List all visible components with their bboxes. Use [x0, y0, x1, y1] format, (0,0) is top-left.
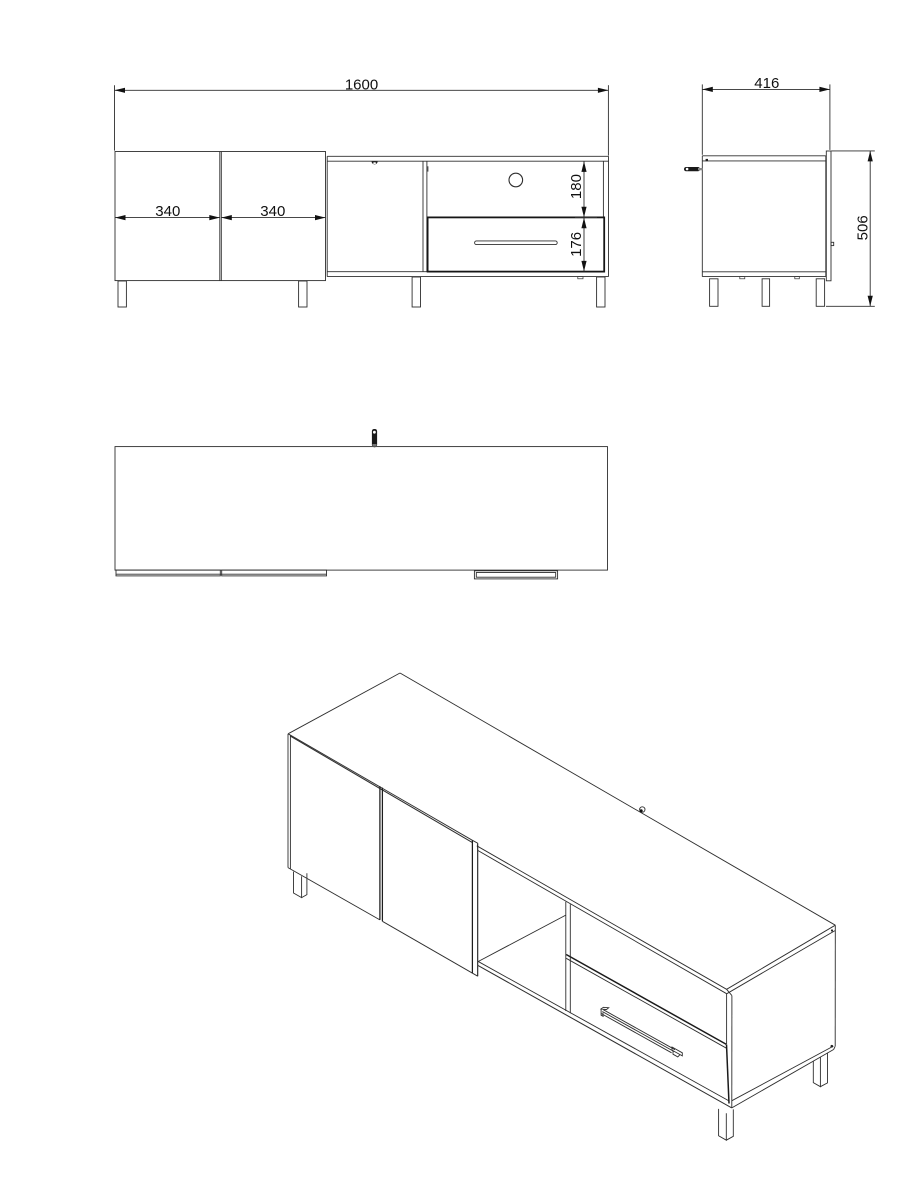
svg-text:416: 416	[754, 75, 779, 92]
svg-text:506: 506	[855, 215, 872, 240]
svg-text:340: 340	[155, 203, 180, 220]
svg-text:176: 176	[568, 232, 585, 257]
svg-text:1600: 1600	[345, 77, 378, 94]
svg-text:180: 180	[568, 174, 585, 199]
svg-text:340: 340	[260, 203, 285, 220]
